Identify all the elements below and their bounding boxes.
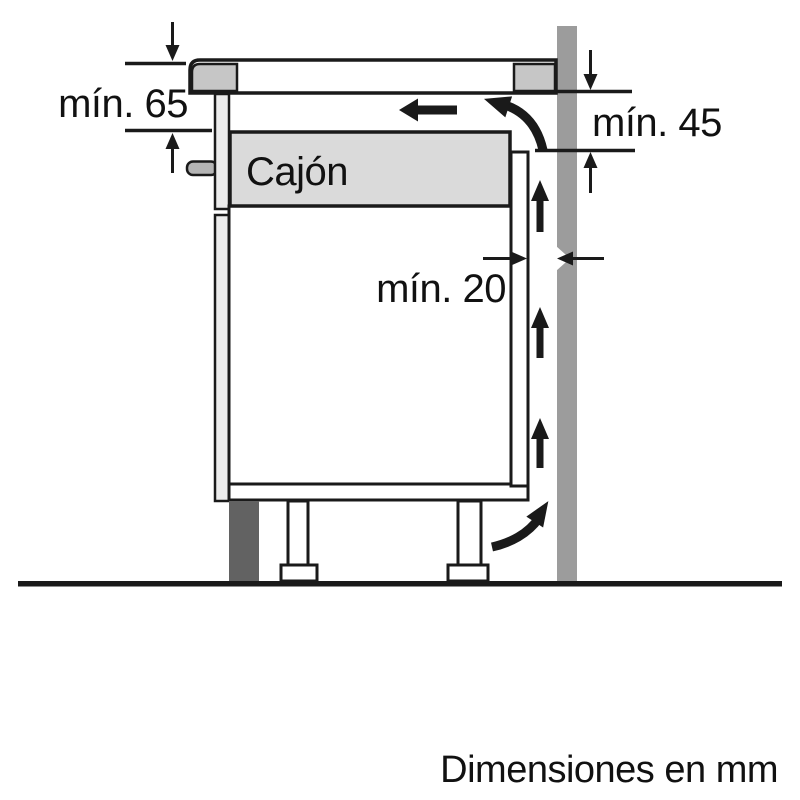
dim-45-down-arrowhead-icon — [584, 74, 598, 90]
left-foot-base — [281, 565, 317, 581]
gap-up-arrow-icon — [531, 307, 549, 358]
units-label: Dimensiones en mm — [440, 749, 778, 791]
right-foot — [448, 501, 488, 581]
drawer-front-panel — [215, 94, 229, 209]
cabinet-bottom-panel — [229, 484, 528, 500]
installation-clearance-diagram: Cajón mín. 65 mín. 45 mín. — [0, 0, 800, 800]
gap-up-arrow-icon — [531, 418, 549, 468]
airflow-left-arrow-icon — [399, 99, 457, 122]
drawer-label: Cajón — [246, 150, 348, 194]
floor-line — [18, 581, 782, 587]
dim-65-label: mín. 65 — [58, 82, 188, 126]
dim-45-up-arrowhead-icon — [584, 152, 598, 168]
cabinet-side-panel — [511, 152, 528, 486]
right-foot-leg — [458, 501, 481, 565]
door-front-panel — [215, 215, 229, 501]
dim-65-up-arrowhead-icon — [166, 133, 180, 149]
dim-65-down-arrowhead-icon — [166, 45, 180, 61]
drawer-handle — [187, 162, 217, 176]
plinth — [229, 501, 259, 582]
wall — [557, 26, 577, 581]
hob-right-cap — [514, 64, 555, 91]
left-foot-leg — [288, 501, 308, 565]
right-foot-base — [448, 565, 488, 581]
hob-body — [190, 60, 556, 93]
hob-left-cap — [192, 64, 237, 91]
airflow-bottom-curved-arrow-icon — [492, 496, 557, 547]
left-foot — [281, 501, 317, 581]
gap-up-arrow-icon — [531, 180, 549, 232]
dim-20-label: mín. 20 — [376, 267, 506, 311]
cabinet-interior — [229, 206, 511, 484]
diagram-svg: Cajón mín. 65 mín. 45 mín. — [0, 0, 800, 800]
dim-45-label: mín. 45 — [592, 101, 722, 145]
